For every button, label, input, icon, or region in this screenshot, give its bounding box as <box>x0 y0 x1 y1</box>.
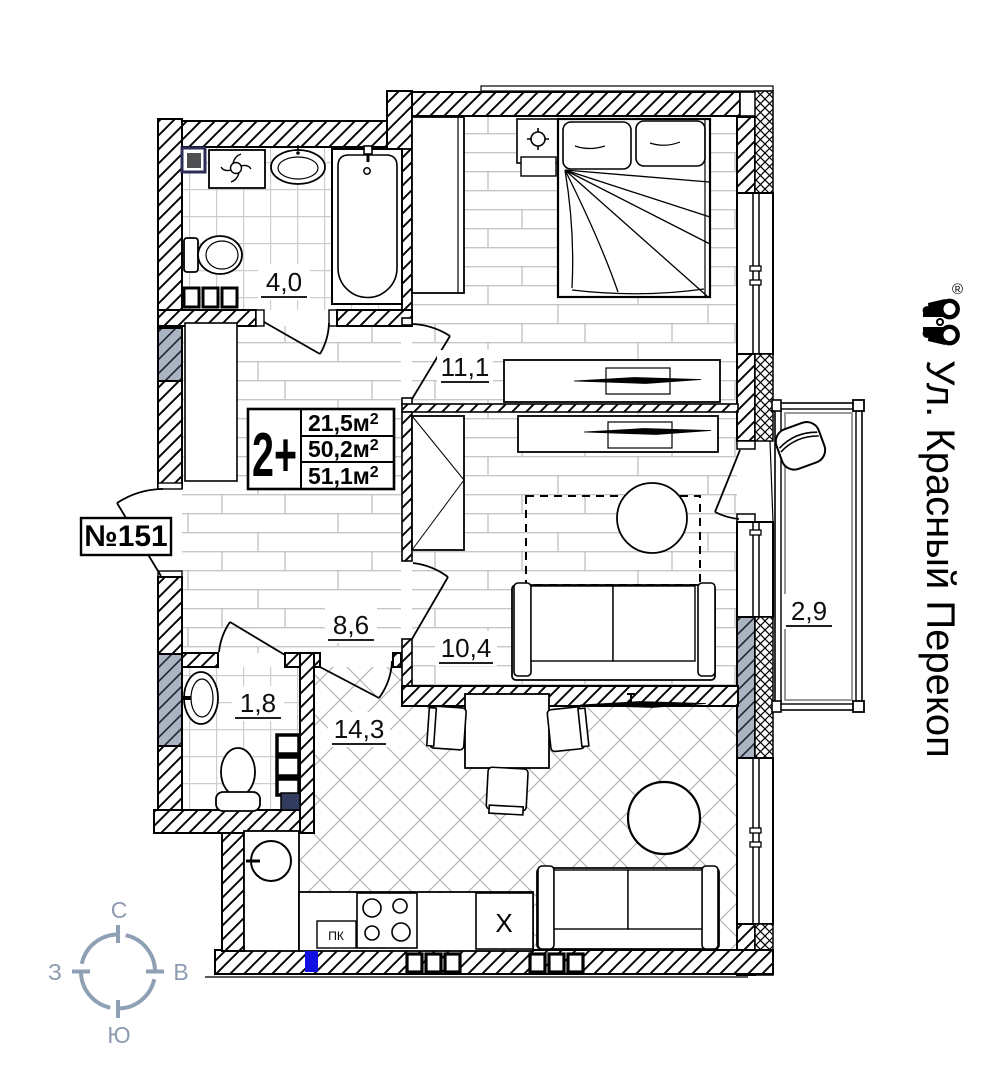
svg-text:14,3: 14,3 <box>334 714 385 744</box>
svg-text:X: X <box>495 908 512 938</box>
svg-text:1,8: 1,8 <box>240 688 276 718</box>
svg-text:50,2м2: 50,2м2 <box>308 436 379 462</box>
svg-text:®: ® <box>952 281 963 298</box>
svg-text:В: В <box>173 959 188 985</box>
svg-text:Ул. Красный Перекоп: Ул. Красный Перекоп <box>918 360 962 758</box>
svg-text:Ю: Ю <box>107 1022 130 1048</box>
svg-text:2+: 2+ <box>252 421 297 490</box>
svg-text:10,4: 10,4 <box>441 633 492 663</box>
svg-text:2,9: 2,9 <box>791 596 827 626</box>
svg-text:№151: №151 <box>84 520 168 553</box>
svg-text:З: З <box>48 959 62 985</box>
svg-text:21,5м2: 21,5м2 <box>308 410 379 436</box>
svg-text:ПК: ПК <box>328 929 344 943</box>
svg-text:С: С <box>111 897 128 923</box>
svg-text:8,6: 8,6 <box>333 610 369 640</box>
svg-text:51,1м2: 51,1м2 <box>308 463 379 489</box>
svg-text:11,1: 11,1 <box>441 352 490 382</box>
svg-text:4,0: 4,0 <box>266 267 302 297</box>
